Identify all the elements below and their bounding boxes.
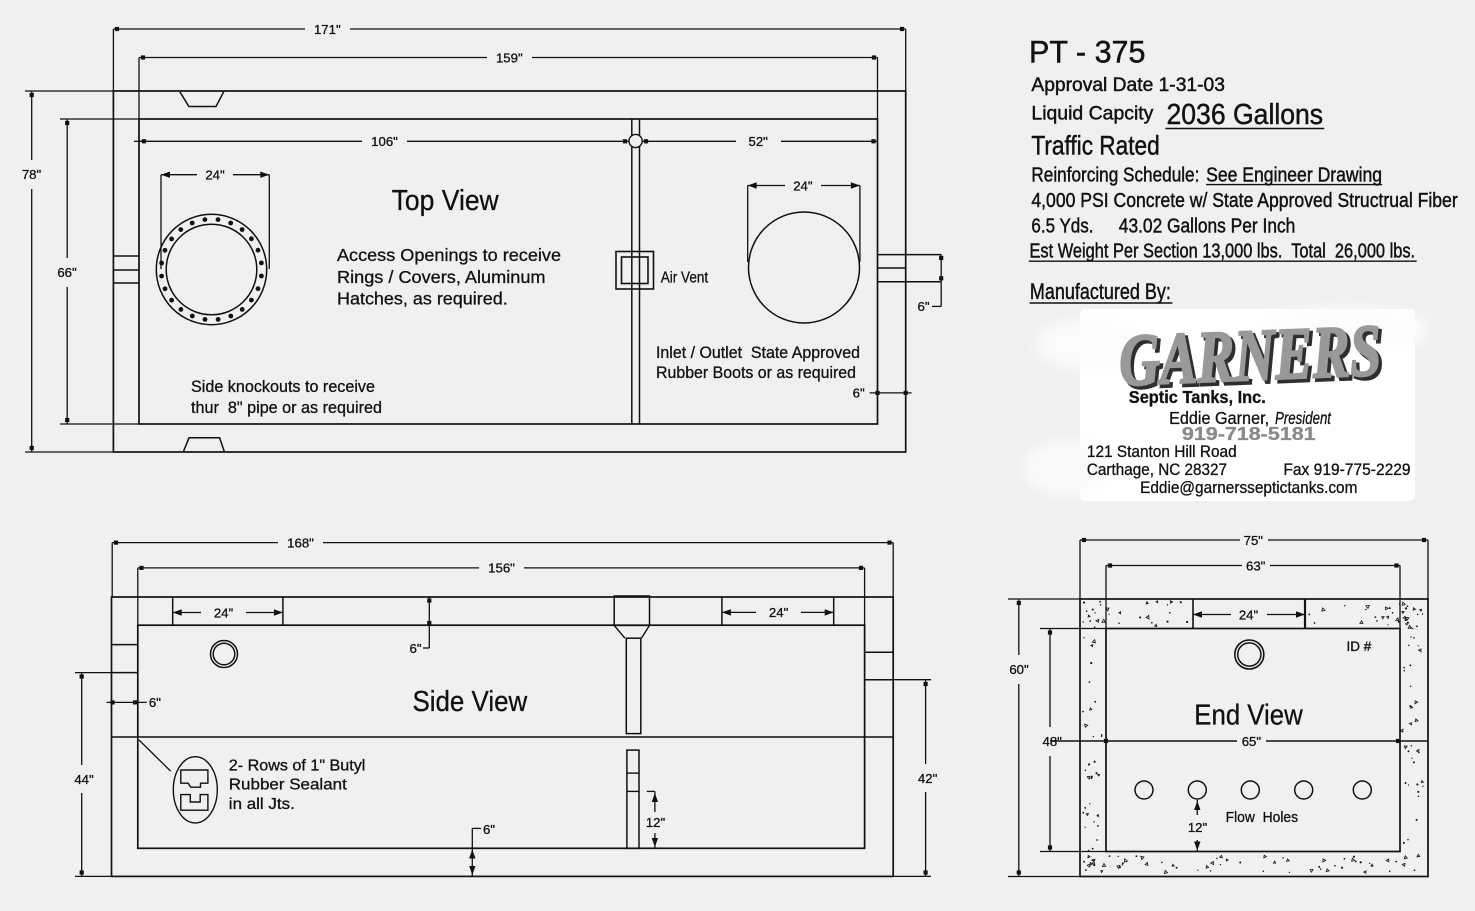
svg-text:106": 106": [371, 134, 398, 149]
svg-text:66": 66": [57, 265, 77, 280]
svg-text:in all Jts.: in all Jts.: [229, 796, 295, 813]
svg-text:919-718-5181: 919-718-5181: [1182, 423, 1316, 444]
svg-text:Carthage, NC 28327: Carthage, NC 28327: [1087, 461, 1227, 479]
svg-text:thur 8" pipe or as required: thur 8" pipe or as required: [191, 399, 382, 417]
svg-text:121 Stanton Hill Road: 121 Stanton Hill Road: [1087, 443, 1237, 461]
svg-text:12": 12": [1188, 820, 1208, 835]
svg-text:PT - 375: PT - 375: [1029, 33, 1146, 69]
svg-text:End View: End View: [1194, 700, 1303, 732]
svg-text:75": 75": [1244, 533, 1264, 548]
svg-text:Manufactured By:: Manufactured By:: [1030, 279, 1171, 304]
svg-text:Fax 919-775-2229: Fax 919-775-2229: [1283, 461, 1410, 479]
svg-text:24": 24": [793, 178, 813, 193]
svg-text:156": 156": [488, 561, 515, 576]
svg-text:Traffic Rated: Traffic Rated: [1031, 130, 1159, 160]
svg-text:43.02 Gallons Per Inch: 43.02 Gallons Per Inch: [1119, 215, 1296, 237]
svg-text:ID #: ID #: [1347, 639, 1372, 654]
svg-text:Rings / Covers, Aluminum: Rings / Covers, Aluminum: [337, 267, 546, 287]
svg-text:6": 6": [853, 386, 865, 401]
svg-text:6.5 Yds.: 6.5 Yds.: [1031, 215, 1093, 237]
svg-text:Est Weight Per Section 13,000: Est Weight Per Section 13,000 lbs. Total…: [1030, 240, 1416, 262]
svg-text:63": 63": [1246, 558, 1266, 573]
svg-text:Flow Holes: Flow Holes: [1226, 809, 1299, 826]
svg-text:Approval Date 1-31-03: Approval Date 1-31-03: [1031, 75, 1225, 96]
svg-text:4,000 PSI Concrete w/ State Ap: 4,000 PSI Concrete w/ State Approved Str…: [1031, 190, 1458, 212]
svg-text:Reinforcing Schedule:: Reinforcing Schedule:: [1031, 165, 1199, 187]
svg-text:24": 24": [214, 605, 234, 620]
svg-text:6": 6": [409, 641, 421, 656]
svg-text:Rubber Boots or as required: Rubber Boots or as required: [656, 363, 856, 382]
svg-text:44": 44": [74, 772, 94, 787]
svg-text:171": 171": [314, 22, 341, 37]
svg-text:2036 Gallons: 2036 Gallons: [1167, 99, 1324, 131]
svg-text:See Engineer Drawing: See Engineer Drawing: [1206, 165, 1382, 187]
svg-text:65": 65": [1242, 734, 1262, 749]
svg-text:6": 6": [917, 299, 929, 314]
svg-text:60": 60": [1009, 662, 1029, 677]
svg-text:6": 6": [483, 822, 495, 837]
svg-text:Side View: Side View: [413, 686, 529, 718]
svg-text:159": 159": [496, 50, 523, 65]
svg-text:Air Vent: Air Vent: [661, 270, 709, 287]
svg-text:Liquid Capcity: Liquid Capcity: [1031, 103, 1153, 125]
svg-text:12": 12": [646, 815, 666, 830]
svg-text:Septic Tanks, Inc.: Septic Tanks, Inc.: [1129, 387, 1266, 407]
svg-text:24": 24": [1239, 607, 1259, 622]
svg-text:24": 24": [769, 605, 789, 620]
svg-text:2- Rows of 1" Butyl: 2- Rows of 1" Butyl: [229, 757, 366, 774]
svg-text:Access Openings to receive: Access Openings to receive: [337, 245, 561, 265]
svg-text:52": 52": [749, 134, 769, 149]
svg-text:Inlet / Outlet State Approved: Inlet / Outlet State Approved: [656, 343, 860, 362]
svg-text:24": 24": [205, 168, 225, 183]
svg-text:78": 78": [22, 167, 42, 182]
svg-text:Top View: Top View: [392, 185, 500, 217]
svg-text:168": 168": [287, 535, 314, 550]
svg-text:Rubber Sealant: Rubber Sealant: [229, 777, 348, 794]
svg-text:Hatches, as required.: Hatches, as required.: [337, 289, 508, 309]
svg-text:Eddie@garnersseptictanks.com: Eddie@garnersseptictanks.com: [1140, 479, 1357, 497]
svg-text:6": 6": [149, 695, 161, 710]
svg-text:42": 42": [918, 771, 938, 786]
svg-text:Side knockouts to receive: Side knockouts to receive: [191, 378, 375, 396]
